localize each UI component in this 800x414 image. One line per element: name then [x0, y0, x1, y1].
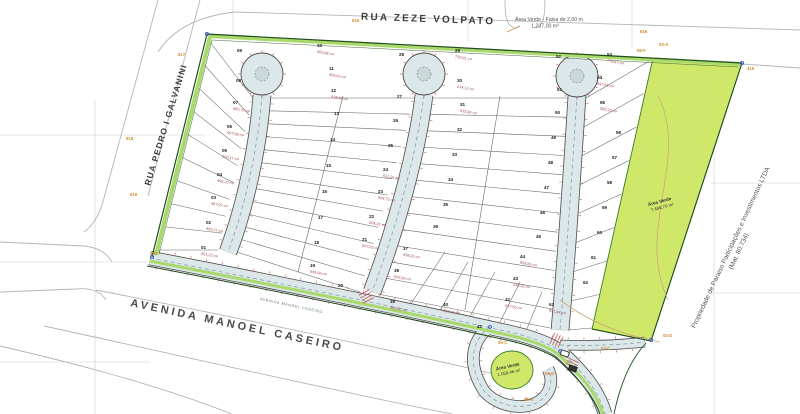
- dimension-tick: [391, 194, 393, 195]
- lot-number: 39: [390, 299, 396, 304]
- lot-number: 35: [443, 202, 449, 207]
- lot-number: 10: [317, 43, 323, 48]
- lot-line: [577, 194, 622, 214]
- lot-area: 561,23 m²: [201, 252, 219, 259]
- cul-de-sac-island: [255, 67, 269, 81]
- dimension-tick: [403, 230, 405, 231]
- dimension-tick: [225, 225, 227, 226]
- lot-number: 49: [551, 135, 557, 140]
- dimension-tick: [483, 374, 485, 375]
- lot-number: 04: [217, 172, 223, 177]
- lot-area: 611,26 m²: [383, 174, 401, 181]
- lot-number: 62: [583, 280, 589, 285]
- lot-line: [582, 127, 637, 156]
- dimension-tick: [399, 163, 401, 164]
- dimension-tick: [489, 385, 491, 387]
- dimension-tick: [442, 85, 445, 87]
- lot-area: 545,06 m²: [310, 270, 328, 277]
- street-name-top: RUA ZEZE VOLPATO: [361, 12, 496, 28]
- lot-number: 61: [591, 255, 597, 260]
- dimension-tick: [373, 254, 375, 255]
- lot-number: 21: [362, 237, 368, 242]
- lot-number: 07: [233, 100, 239, 105]
- lot-number: 15: [326, 163, 332, 168]
- lot-number: 50: [555, 110, 561, 115]
- dimension-tick: [408, 215, 410, 216]
- leader-line: [507, 26, 520, 32]
- lot-number: 52: [556, 54, 562, 59]
- street-name-left: RUA PEDRO I GALVANINI: [142, 63, 189, 187]
- dimension-tick: [403, 85, 406, 87]
- lot-number: 29: [455, 48, 461, 53]
- lot-area: 500,17 m²: [222, 155, 240, 162]
- lot-number: 33: [452, 152, 458, 157]
- dimension-tick: [250, 216, 252, 217]
- lot-number: 41: [477, 324, 483, 329]
- lot-line: [468, 272, 495, 320]
- dimension-tick: [393, 261, 395, 262]
- lot-number: 20: [338, 283, 344, 288]
- dimension-tick: [500, 393, 501, 395]
- dimension-tick: [585, 393, 587, 394]
- lot-number: 14: [330, 137, 336, 142]
- lot-area: 608,32 m²: [369, 221, 387, 228]
- lot-number: 45: [536, 234, 542, 239]
- avenue-name: AVENIDA MANOEL CASEIRO: [129, 297, 345, 354]
- dimension-tick: [579, 357, 581, 359]
- lot-area: 503,98 m²: [317, 50, 335, 57]
- lot-number: 55: [600, 100, 606, 105]
- survey-point-label: 416: [747, 66, 755, 71]
- lot-number: 05: [222, 148, 228, 153]
- survey-point-label: 05-F: [637, 48, 646, 53]
- dimension-tick: [254, 200, 256, 201]
- lot-number: 16: [322, 189, 328, 194]
- dimension-tick: [412, 199, 414, 200]
- lot-number: 40: [443, 302, 449, 307]
- lot-area: 465,27 m²: [206, 227, 224, 234]
- lot-number: 12: [331, 88, 337, 93]
- lot-number: 17: [318, 215, 324, 220]
- dimension-tick: [489, 317, 490, 319]
- block-spine-line: [298, 96, 343, 272]
- dimension-tick: [608, 399, 610, 400]
- dimension-tick: [592, 406, 594, 407]
- lot-number: 19: [310, 263, 316, 268]
- lot-line: [573, 261, 607, 272]
- dimension-tick: [435, 92, 437, 95]
- lot-area: 487,97 m²: [211, 202, 229, 209]
- lot-number: 22: [369, 214, 375, 219]
- dimension-tick: [556, 64, 559, 66]
- dimension-tick: [233, 194, 235, 195]
- lot-area: 608,26 m²: [403, 253, 421, 260]
- lot-line: [428, 114, 566, 117]
- lot-line: [408, 252, 445, 308]
- lot-number: 02: [206, 220, 212, 225]
- lot-area: 618,42 m²: [331, 95, 349, 102]
- lot-area: 732,91 m²: [455, 55, 473, 62]
- survey-point-label: 06-D: [545, 371, 554, 376]
- dimension-tick: [403, 62, 406, 64]
- survey-point-label: 616: [352, 18, 360, 23]
- dimension-tick: [426, 304, 427, 306]
- lot-line: [193, 111, 241, 148]
- cul-de-sac-island: [570, 69, 584, 83]
- lot-area: 503,63 m²: [329, 73, 347, 80]
- avenue-name-inner: AVENIDA MANOEL CASEIRO: [260, 297, 323, 314]
- dimension-tick: [280, 62, 283, 64]
- survey-point-label: 03-C: [601, 346, 610, 351]
- dimension-tick: [229, 210, 231, 211]
- lot-number: 09: [237, 48, 243, 53]
- dimension-tick: [412, 92, 414, 95]
- lot-line: [246, 214, 374, 244]
- lot-number: 32: [457, 127, 463, 132]
- dimension-tick: [595, 64, 598, 66]
- lot-number: 25: [388, 143, 394, 148]
- cul-de-sac-island: [417, 67, 431, 81]
- survey-point-label: 620: [150, 251, 158, 256]
- dimension-tick: [600, 383, 602, 384]
- lot-line: [248, 201, 378, 228]
- dimension-tick: [435, 53, 437, 56]
- lot-line: [526, 292, 542, 331]
- dimension-tick: [595, 87, 598, 89]
- dimension-tick: [362, 284, 364, 285]
- dimension-tick: [220, 239, 222, 240]
- dimension-tick: [250, 92, 252, 95]
- survey-point-label: 06-A: [524, 397, 533, 402]
- lot-number: 01: [201, 245, 207, 250]
- lot-number: 34: [448, 177, 454, 182]
- lot-number: 60: [597, 230, 603, 235]
- dimension-tick: [442, 62, 445, 64]
- lot-line: [243, 226, 369, 259]
- dimension-tick: [493, 407, 494, 409]
- lot-number: 11: [329, 66, 334, 71]
- dimension-tick: [416, 184, 418, 185]
- property-note-line1: Propriedade de Paraiso Participações e I…: [690, 165, 771, 329]
- dimension-tick: [241, 62, 244, 64]
- dimension-tick: [547, 404, 549, 406]
- lot-area: 607,03 m²: [362, 244, 380, 251]
- dimension-tick: [388, 276, 390, 277]
- lot-area: 637,50 m²: [505, 304, 523, 311]
- lot-area: 638,26 m²: [513, 283, 531, 290]
- lot-number: 56: [616, 130, 622, 135]
- dimension-tick: [403, 148, 405, 149]
- dimension-tick: [467, 343, 469, 344]
- survey-point-label: 03-A: [659, 42, 668, 47]
- lot-area: 958,86 m²: [520, 261, 538, 268]
- lot-area: 568,73 m²: [378, 196, 396, 203]
- lot-number: 13: [334, 111, 340, 116]
- lot-number: 23: [378, 189, 384, 194]
- dimension-tick: [378, 239, 380, 240]
- lot-number: 38: [394, 268, 400, 273]
- lot-number: 59: [602, 205, 608, 210]
- lot-number: 18: [314, 240, 320, 245]
- dimension-tick: [520, 324, 521, 326]
- street-pavement: [228, 95, 262, 252]
- dimension-tick: [536, 329, 537, 331]
- dimension-tick: [412, 53, 414, 56]
- dimension-tick: [387, 209, 389, 210]
- lot-number: 48: [548, 160, 554, 165]
- lot-number: 03: [211, 195, 217, 200]
- dimension-tick: [565, 94, 567, 97]
- lot-number: 30: [457, 78, 463, 83]
- dimension-tick: [245, 231, 247, 232]
- lot-area: 602,93 m²: [394, 275, 412, 282]
- dimension-tick: [576, 381, 578, 383]
- dimension-tick: [477, 396, 479, 398]
- dimension-tick: [280, 85, 283, 87]
- survey-point-label: 619: [130, 192, 138, 197]
- lot-line: [188, 134, 238, 165]
- lot-number: 63: [549, 302, 555, 307]
- lot-number: 27: [397, 94, 403, 99]
- lot-number: 24: [383, 167, 389, 172]
- lot-number: 53: [607, 52, 613, 57]
- lot-number: 43: [513, 276, 519, 281]
- plat-map: 01561,23 m²02465,27 m²03487,97 m²04495,2…: [0, 0, 800, 414]
- lot-number: 08: [236, 78, 242, 83]
- dimension-tick: [250, 53, 252, 56]
- dimension-tick: [273, 53, 275, 56]
- dimension-tick: [237, 179, 239, 180]
- lot-area: 614,12 m²: [457, 85, 475, 92]
- lot-area: 480,72 m²: [233, 107, 251, 114]
- lot-line: [182, 158, 233, 183]
- survey-point-label: 617: [178, 52, 186, 57]
- lot-line: [260, 149, 397, 162]
- lot-number: 06: [227, 124, 233, 129]
- lot-number: 54: [597, 75, 603, 80]
- green-strip-label-1: Área Verde - Faixa de 2,00 m: [515, 16, 583, 23]
- lot-number: 44: [520, 254, 526, 259]
- subdivision-plan-drawing: 01561,23 m²02465,27 m²03487,97 m²04495,2…: [0, 0, 800, 414]
- property-note: Propriedade de Paraiso Participações e I…: [690, 165, 780, 333]
- dimension-tick: [258, 184, 260, 185]
- lot-number: 42: [505, 297, 511, 302]
- green-strip-label-2: 1.237,00 m²: [531, 24, 559, 30]
- dimension-tick: [240, 247, 242, 248]
- dimension-tick: [420, 168, 422, 169]
- survey-point-label: 06-C: [498, 340, 507, 345]
- survey-point-label: 618: [126, 136, 134, 141]
- survey-point-label: 03-D: [663, 333, 672, 338]
- lot-number: 51: [557, 87, 563, 92]
- lot-line: [575, 228, 614, 244]
- lot-number: 28: [399, 52, 405, 57]
- dimension-tick: [424, 152, 426, 153]
- lot-number: 37: [403, 246, 409, 251]
- lot-line: [568, 328, 592, 330]
- lot-area: 497,58 m²: [227, 131, 245, 138]
- lot-line: [257, 162, 392, 179]
- lot-number: 31: [460, 102, 466, 107]
- lot-number: 58: [607, 180, 613, 185]
- lot-number: 57: [612, 155, 618, 160]
- lot-line: [579, 161, 629, 186]
- lot-line: [240, 239, 365, 276]
- lot-area: 495,20 m²: [217, 179, 235, 186]
- dimension-tick: [468, 379, 470, 380]
- dimension-tick: [383, 292, 385, 293]
- lot-number: 36: [433, 224, 439, 229]
- lot-number: 46: [540, 210, 546, 215]
- dimension-tick: [590, 370, 592, 372]
- dimension-tick: [473, 314, 474, 316]
- dimension-tick: [368, 269, 370, 270]
- survey-point-label: 616: [640, 29, 648, 34]
- lot-number: 26: [393, 118, 399, 123]
- dimension-tick: [536, 392, 538, 394]
- dimension-tick: [482, 348, 484, 349]
- lot-number: 47: [544, 185, 550, 190]
- dimension-tick: [273, 92, 275, 95]
